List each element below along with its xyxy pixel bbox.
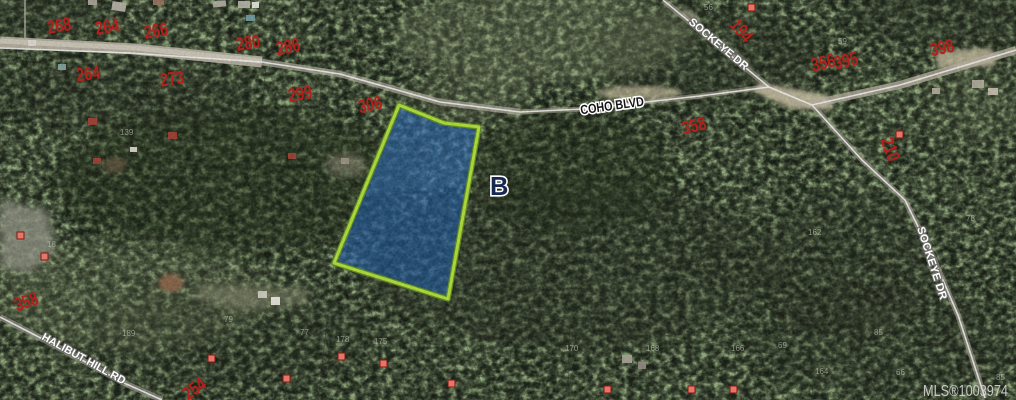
svg-text:18: 18	[47, 240, 56, 249]
svg-text:79: 79	[224, 315, 233, 324]
svg-text:164: 164	[815, 367, 829, 376]
svg-text:59: 59	[838, 37, 847, 46]
svg-text:85: 85	[874, 328, 883, 337]
svg-text:MLS®1003974: MLS®1003974	[923, 383, 1008, 400]
svg-text:264: 264	[94, 15, 122, 40]
svg-text:273: 273	[159, 67, 186, 91]
svg-text:139: 139	[120, 128, 134, 137]
svg-text:175: 175	[374, 337, 388, 346]
svg-text:178: 178	[336, 335, 350, 344]
svg-text:B: B	[490, 173, 508, 201]
svg-text:266: 266	[143, 19, 170, 44]
svg-text:168: 168	[646, 344, 660, 353]
svg-text:264: 264	[75, 62, 102, 86]
svg-text:69: 69	[778, 341, 787, 350]
svg-text:299: 299	[287, 82, 314, 107]
svg-text:166: 166	[731, 344, 745, 353]
svg-text:189: 189	[122, 329, 136, 338]
svg-text:78: 78	[966, 214, 975, 223]
svg-text:85: 85	[996, 373, 1005, 382]
svg-text:170: 170	[565, 344, 579, 353]
svg-text:66: 66	[896, 368, 905, 377]
svg-text:77: 77	[300, 328, 309, 337]
svg-text:280: 280	[235, 31, 262, 56]
svg-text:162: 162	[808, 228, 822, 237]
svg-text:56: 56	[704, 3, 713, 12]
svg-text:268: 268	[46, 14, 73, 39]
